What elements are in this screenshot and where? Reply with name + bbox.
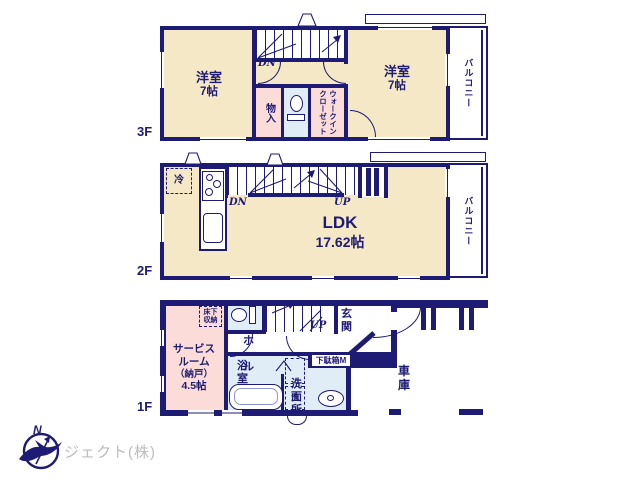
compass-n-letter: N <box>33 423 42 437</box>
underfloor-label: 床下収納 <box>204 309 218 324</box>
room-name: 洋室 <box>384 64 410 80</box>
wall-segment <box>281 88 284 137</box>
stairs-dn-label-3f: DN <box>258 58 276 69</box>
balcony-2f: バルコニー <box>450 163 488 278</box>
window-marker <box>159 214 164 242</box>
balcony-2f-upper-rail <box>370 152 486 162</box>
room-name: 洋室 <box>196 70 222 86</box>
room-size: 7帖 <box>200 86 218 100</box>
garage-edge-dash <box>459 409 483 415</box>
stairs-3f <box>256 30 344 58</box>
garage-shutter-bar <box>431 300 436 330</box>
toilet-tank-icon <box>249 306 256 324</box>
floor-label-1f: 1F <box>137 399 152 414</box>
balcony-3f-upper-rail <box>365 14 486 24</box>
wall-segment <box>224 304 228 410</box>
underfloor-storage-1f: 床下収納 <box>199 306 222 327</box>
service-line2: ルーム <box>178 356 209 369</box>
balcony-door-2f <box>445 169 450 197</box>
service-line4: 4.5帖 <box>181 380 206 393</box>
kitchen-sink-icon <box>203 213 223 243</box>
wall-segment <box>384 167 388 198</box>
closet-monoire-label: 物入 <box>263 103 275 123</box>
wall-segment <box>334 303 338 334</box>
balcony-rail <box>481 167 483 274</box>
window-marker <box>368 137 430 142</box>
balcony-3f: バルコニー <box>450 26 488 140</box>
washroom-label: 洗面所 <box>291 378 302 418</box>
balcony-3f-label: バルコニー <box>463 58 474 108</box>
stairs-up-label-1f: UP <box>310 320 326 331</box>
window-marker <box>230 276 252 281</box>
garage-edge-dash <box>389 409 401 415</box>
room-yoshitsu-right-3f: 洋室 7帖 <box>348 60 446 98</box>
window-marker <box>222 410 242 416</box>
balcony-rail <box>481 30 483 136</box>
bath-label: 浴室 <box>237 360 248 386</box>
service-room-label: サービス ルーム （納戸） 4.5帖 <box>164 336 224 400</box>
burner-icon <box>213 180 221 188</box>
walk-in-closet-label: ウォークインクローゼット <box>318 90 338 136</box>
stairs-up-label-2f: UP <box>334 197 350 208</box>
ldk-size: 17.62帖 <box>315 234 364 251</box>
window-marker <box>188 410 214 416</box>
garage-wall <box>395 300 488 308</box>
sink-drain <box>327 395 334 401</box>
wall-segment <box>248 193 344 197</box>
garage-shutter-bar <box>459 300 464 330</box>
shoe-box-text: 下駄箱M <box>316 356 347 366</box>
floorplan-canvas: バルコニー 物入 ウォークインクローゼット DN 洋室 7帖 <box>0 0 640 480</box>
floor-label-3f: 3F <box>137 124 152 139</box>
toilet-icon-1f <box>231 308 247 322</box>
stairs-dn-label-2f: DN <box>229 197 247 208</box>
window-marker <box>159 52 164 88</box>
shoe-box-label: 下駄箱M <box>312 355 350 366</box>
window-bars-2f <box>362 167 384 197</box>
fridge-label: 冷 <box>174 175 184 187</box>
window-bar <box>374 168 379 196</box>
floor-label-2f: 2F <box>137 263 152 278</box>
wall-segment <box>262 304 266 332</box>
window-marker <box>378 25 432 30</box>
window-marker <box>398 276 420 281</box>
garage-shutter-bar <box>421 300 426 330</box>
window-marker <box>200 137 246 142</box>
room-size: 7帖 <box>388 80 406 94</box>
garage-shutter-bar <box>469 300 474 330</box>
service-line1: サービス <box>173 343 215 356</box>
ldk-name: LDK <box>323 213 358 233</box>
underfloor-line2: 収納 <box>204 317 218 324</box>
ldk-2f: LDK 17.62帖 <box>270 212 410 252</box>
toilet-icon-3f <box>290 95 303 112</box>
window-bar <box>366 168 371 196</box>
toilet-tank-icon <box>287 114 305 121</box>
window-marker <box>312 276 334 281</box>
closet-monoire-3f: 物入 <box>256 88 281 137</box>
fridge-space-2f: 冷 <box>166 168 192 194</box>
burner-icon <box>205 188 213 196</box>
garage-label: 車庫 <box>398 364 410 393</box>
burner-icon <box>206 174 213 181</box>
bathtub-inner <box>234 388 278 405</box>
compass-north-icon: N <box>12 420 68 476</box>
room-yoshitsu-left-3f: 洋室 7帖 <box>166 66 252 104</box>
service-line3: （納戸） <box>175 369 213 380</box>
walk-in-closet-3f: ウォークインクローゼット <box>311 88 344 137</box>
underfloor-line1: 床下 <box>204 309 218 316</box>
wall-segment <box>308 88 311 137</box>
wall-segment <box>160 300 397 306</box>
entrance-label: 玄関 <box>341 308 352 334</box>
balcony-2f-label: バルコニー <box>463 196 474 246</box>
company-name: ジェクト(株) <box>64 441 156 462</box>
entrance-door-arc <box>373 307 421 338</box>
stairs-2f <box>228 167 362 195</box>
